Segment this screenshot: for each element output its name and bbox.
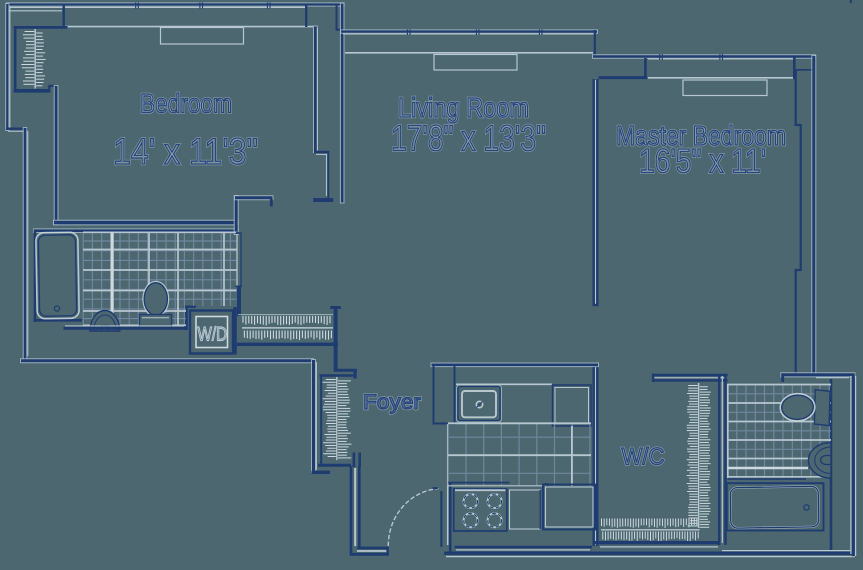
svg-text:17'8" x 13'3": 17'8" x 13'3" — [391, 118, 546, 159]
svg-text:W/C: W/C — [622, 444, 665, 471]
svg-text:Foyer: Foyer — [363, 391, 421, 414]
svg-text:Bedroom: Bedroom — [140, 88, 232, 118]
svg-text:14' x 11'3": 14' x 11'3" — [113, 131, 258, 172]
svg-text:W/D: W/D — [198, 324, 228, 345]
svg-text:16'5" x 11': 16'5" x 11' — [639, 143, 766, 181]
